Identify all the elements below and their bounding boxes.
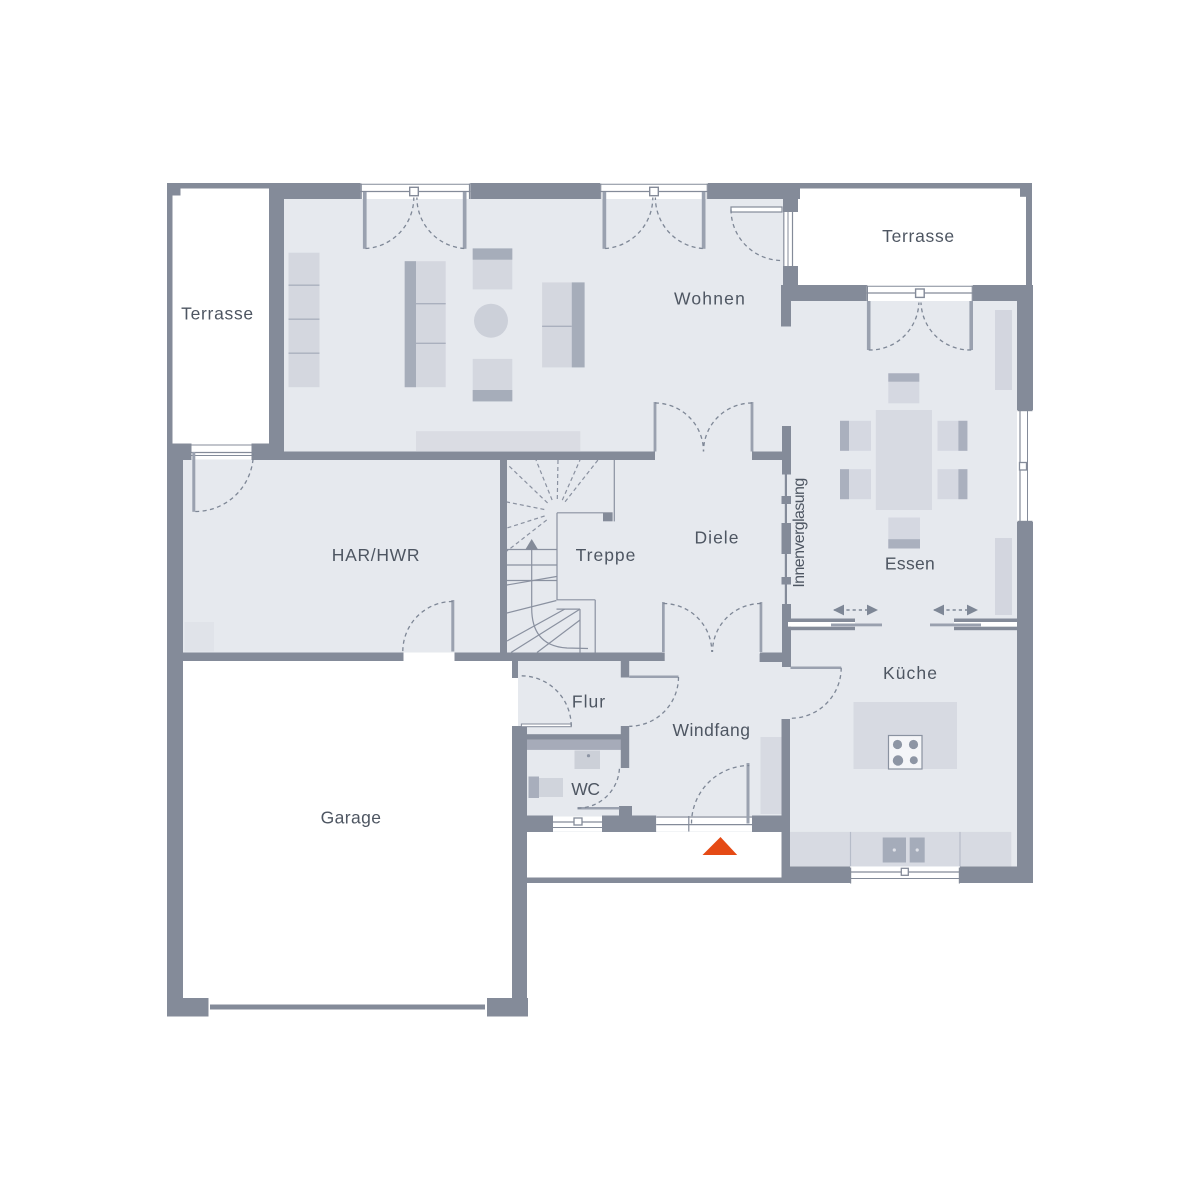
svg-text:Windfang: Windfang (673, 720, 751, 740)
svg-text:Küche: Küche (883, 663, 938, 683)
svg-text:WC: WC (571, 779, 600, 799)
svg-text:Terrasse: Terrasse (882, 226, 955, 246)
svg-text:Terrasse: Terrasse (181, 304, 254, 324)
svg-text:HAR/HWR: HAR/HWR (332, 545, 421, 565)
svg-text:Wohnen: Wohnen (674, 289, 746, 309)
svg-text:Garage: Garage (321, 808, 382, 828)
svg-text:Diele: Diele (695, 528, 740, 548)
svg-text:Flur: Flur (572, 692, 606, 712)
svg-text:Treppe: Treppe (576, 545, 637, 565)
svg-text:Essen: Essen (885, 554, 935, 574)
svg-text:Innenverglasung: Innenverglasung (791, 478, 808, 587)
